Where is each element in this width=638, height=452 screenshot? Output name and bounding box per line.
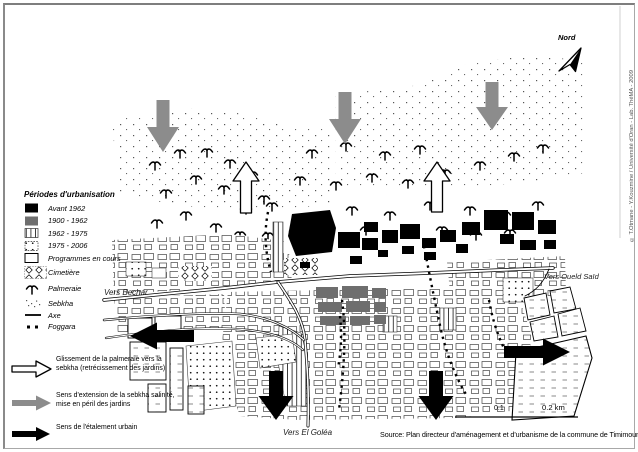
road-label-vers-el-golea: Vers El Goléa xyxy=(283,428,332,437)
black-arrow-icon xyxy=(10,424,56,447)
road-label-vers-bechar: Vers Bechar xyxy=(104,288,148,297)
legend-periods: Périodes d'urbanisation Avant 1962 1900 … xyxy=(24,190,152,334)
legend-item-programmes: Programmes en cours xyxy=(24,253,152,263)
road-label-vers-oueld-said: Vers Oueld Saïd xyxy=(544,272,599,281)
colonial-blocks-1900-1962 xyxy=(316,286,386,325)
map-page: Nord Périodes d'urbanisation Avant 1962 … xyxy=(0,0,638,452)
swatch-outline-icon xyxy=(24,253,48,263)
arrow-legend-item-gray: Sens d'extension de la sebkha salinité, … xyxy=(10,392,194,417)
gray-arrow-icon xyxy=(10,392,56,417)
legend-item-sebkha: Sebkha xyxy=(24,298,152,308)
legend-item-cimetiere: Cimetière xyxy=(24,266,152,279)
swatch-cemetery-icon xyxy=(24,266,48,279)
swatch-axe-icon xyxy=(24,311,48,319)
legend-item-1975-2006: 1975 - 2006 xyxy=(24,241,152,251)
arrow-legend-item-black: Sens de l'étalement urbain xyxy=(10,424,194,447)
legend-item-1900-1962: 1900 - 1962 xyxy=(24,216,152,226)
legend-item-1962-1975: 1962 - 1975 xyxy=(24,228,152,238)
swatch-vlines-icon xyxy=(24,228,48,238)
legend-title: Périodes d'urbanisation xyxy=(24,190,152,199)
white-arrow-icon xyxy=(10,356,56,385)
swatch-sebkha-icon xyxy=(24,298,48,308)
swatch-dots-icon xyxy=(24,241,48,251)
legend-arrows: Glissement de la palmeraie vers la sebkh… xyxy=(10,356,194,452)
swatch-black-icon xyxy=(24,203,48,213)
scale-end-label: 0.2 km xyxy=(542,403,565,412)
legend-item-avant-1962: Avant 1962 xyxy=(24,203,152,213)
swatch-gray-icon xyxy=(24,216,48,226)
credit-note: © T.Otmane - Y.Kouzmine / Université d'O… xyxy=(629,12,635,242)
swatch-foggara-icon xyxy=(24,323,48,331)
north-label: Nord xyxy=(558,33,576,42)
scale-mid-label: 0.1 xyxy=(494,405,504,412)
legend-item-axe: Axe xyxy=(24,311,152,320)
swatch-palm-icon xyxy=(24,282,48,296)
legend-item-foggara: Foggara xyxy=(24,322,152,331)
source-note: Source: Plan directeur d'aménagement et … xyxy=(380,430,638,439)
arrow-legend-item-white: Glissement de la palmeraie vers la sebkh… xyxy=(10,356,194,385)
